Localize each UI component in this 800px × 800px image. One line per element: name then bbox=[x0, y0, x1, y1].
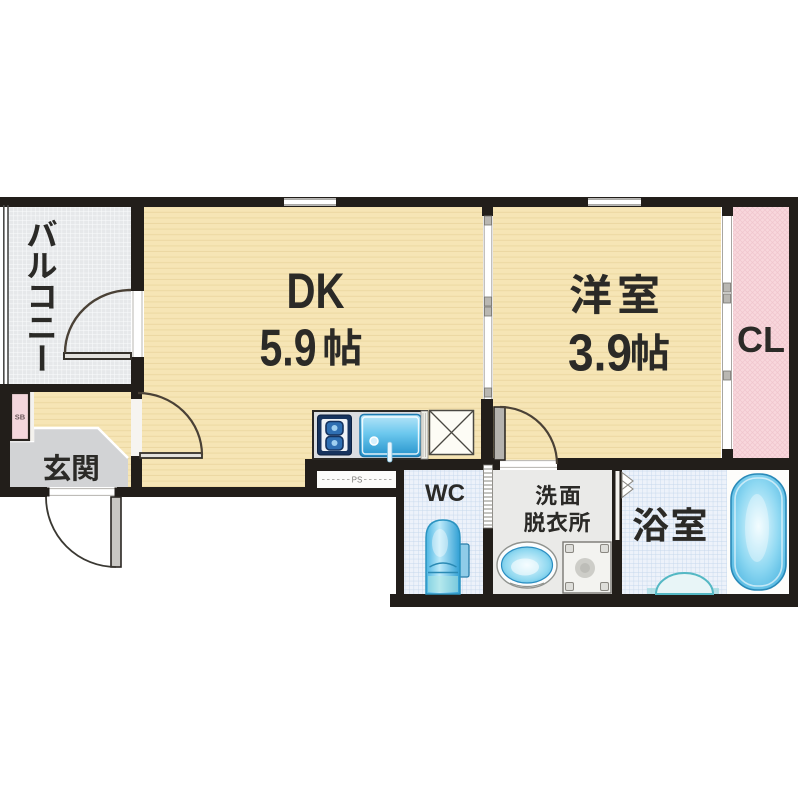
svg-text:PS: PS bbox=[352, 476, 363, 485]
svg-text:3.9: 3.9 bbox=[568, 325, 632, 383]
svg-text:SB: SB bbox=[15, 413, 26, 422]
svg-text:CL: CL bbox=[737, 319, 785, 360]
svg-text:DK: DK bbox=[287, 263, 345, 319]
svg-text:WC: WC bbox=[425, 480, 465, 507]
svg-text:5.9: 5.9 bbox=[260, 320, 317, 378]
